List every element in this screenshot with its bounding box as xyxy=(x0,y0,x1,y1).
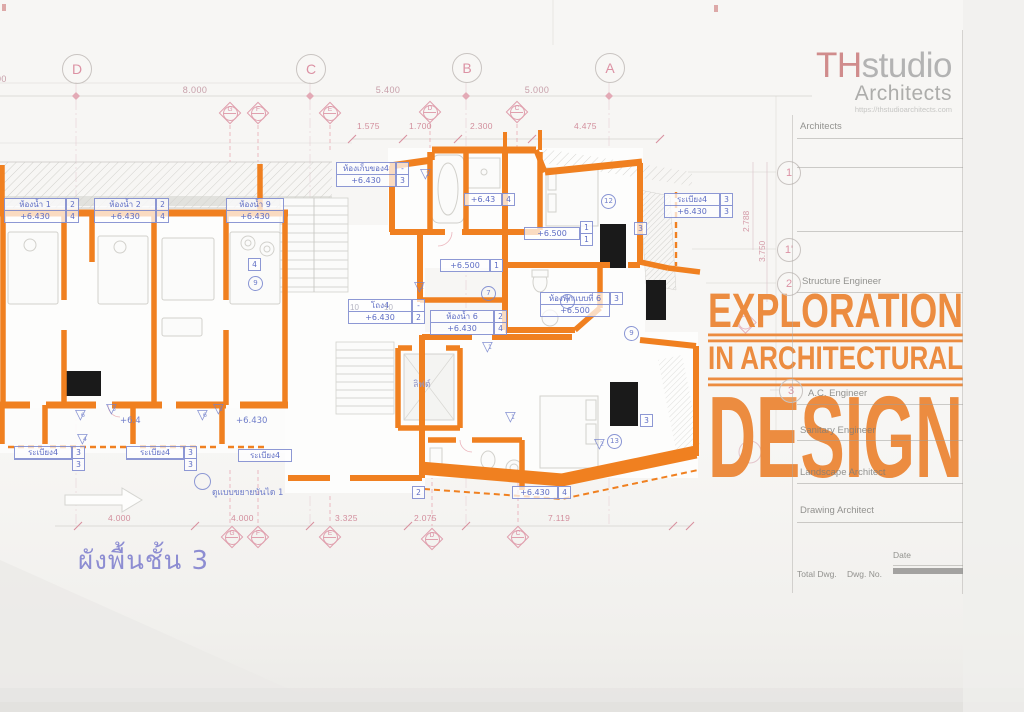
grid-bubble-3: 3 xyxy=(779,379,803,403)
ref-tag-circle: 7 xyxy=(481,286,496,301)
dim-top-partial: 00 xyxy=(0,74,7,84)
tag-box: 2 xyxy=(412,486,425,499)
grid-bubble-b-label: B xyxy=(462,60,471,76)
window-tag-triangle: ▽3 xyxy=(213,404,229,418)
lift-label: ลิฟต์ xyxy=(413,377,431,391)
tag-box: 3 xyxy=(634,222,647,235)
tag-box: 3 xyxy=(396,174,409,187)
ref-tag-circle: 12 xyxy=(601,194,616,209)
window-tag-triangle: ▽6 xyxy=(197,410,213,424)
titleblock-rule xyxy=(797,138,963,139)
tag-box: 1 xyxy=(490,259,503,272)
door-tag-g-bottom: G xyxy=(220,525,244,549)
titleblock-total-dwg: Total Dwg. xyxy=(797,569,837,579)
window-tag-triangle: ▽2 xyxy=(420,169,436,183)
titleblock-landscape-architect: Landscape Architect xyxy=(800,467,886,478)
titleblock-border xyxy=(962,30,963,594)
tag-box: 3 xyxy=(72,458,85,471)
grid-bubble-c: C xyxy=(296,54,326,84)
elev-label-6500b: +6.500 xyxy=(440,259,490,272)
room-label-balcony-3: ระเบียง4 xyxy=(238,449,292,462)
window-tag-triangle: ▽1 xyxy=(505,412,521,426)
door-tag-c-bottom: C xyxy=(506,525,530,549)
dim-top-3: 5.000 xyxy=(515,85,559,95)
titleblock-rule xyxy=(797,483,963,484)
gray-number: 10 xyxy=(384,303,393,312)
titleblock-rule xyxy=(797,522,963,523)
tag-box: 3 xyxy=(184,458,197,471)
window-tag-triangle: ▽4 xyxy=(77,434,93,448)
tag-box: 4 xyxy=(248,258,261,271)
titleblock-rule xyxy=(797,404,963,405)
window-tag-triangle: ▽6 xyxy=(75,410,91,424)
titleblock-border xyxy=(792,115,793,593)
door-tag-g-top: G xyxy=(218,101,242,125)
room-label-unit6: ห้องพักแบบที่ 6+6.500 xyxy=(540,292,610,317)
logo-url: https://thstudioarchitects.com xyxy=(816,104,952,115)
logo: THstudio Architects https://thstudioarch… xyxy=(816,48,952,115)
ref-tag-circle: 9 xyxy=(624,326,639,341)
plan-title: ผังพื้นชั้น 3 xyxy=(78,540,209,581)
ref-tag-circle: 7 xyxy=(560,294,575,309)
dim-bot-1: 4.000 xyxy=(108,513,131,523)
grid-bubble-1: 1 xyxy=(777,161,801,185)
grid-bubble-a: A xyxy=(595,53,625,83)
titleblock-rule xyxy=(893,565,963,566)
titleblock-drawing-architect: Drawing Architect xyxy=(800,505,874,516)
tag-box: 4 xyxy=(156,210,169,223)
door-tag-d-bottom: D xyxy=(420,527,444,551)
titleblock-bar xyxy=(893,568,963,574)
room-label-balcony-right: ระเบียง4+6.430 xyxy=(664,193,720,218)
dim-bot-2: 4.000 xyxy=(231,513,254,523)
titleblock-rule xyxy=(797,440,963,441)
window-tag-triangle: ▽2 xyxy=(414,282,430,296)
tag-box: 1 xyxy=(580,233,593,246)
print-mark xyxy=(2,4,6,11)
door-tag-d-top: D xyxy=(418,100,442,124)
door-tag-e-top: E xyxy=(318,101,342,125)
dim-right-1: 2.788 xyxy=(741,211,751,232)
door-tag-f-bottom: F xyxy=(246,525,270,549)
tag-circle: 9 xyxy=(248,276,263,291)
grid-bubble-a-label: A xyxy=(605,60,614,76)
door-tag-c-top: C xyxy=(505,100,529,124)
logo-architects: Architects xyxy=(816,84,952,104)
room-label-bath1: ห้องน้ำ 1+6.430 xyxy=(4,198,66,223)
door-tag-f-top: F xyxy=(246,101,270,125)
dim-sub-3: 2.300 xyxy=(470,121,493,131)
detail-circle-icon xyxy=(194,473,211,490)
dim-bot-4: 2.075 xyxy=(414,513,437,523)
dim-right-2: 3.750 xyxy=(757,241,767,262)
titleblock-ac-engineer: A.C. Engineer xyxy=(808,388,867,399)
print-mark xyxy=(714,5,718,12)
titleblock-rule xyxy=(797,231,963,232)
dim-top-2: 5.400 xyxy=(366,85,410,95)
logo-th: TH xyxy=(816,46,862,85)
grid-bubble-d-label: D xyxy=(72,61,82,77)
ref-tag-circle: 13 xyxy=(607,434,622,449)
elev-plain: +6.4 xyxy=(120,416,141,426)
grid-bubble-d: D xyxy=(62,54,92,84)
grid-bubble-b: B xyxy=(452,53,482,83)
room-label-bath6: ห้องน้ำ 6+6.430 xyxy=(430,310,494,335)
titleblock-rule xyxy=(797,167,963,168)
tag-box: 4 xyxy=(502,193,515,206)
room-label-balcony-1: ระเบียง4 xyxy=(14,446,72,460)
tag-box: 3 xyxy=(610,292,623,305)
dim-bot-5: 7.119 xyxy=(548,513,570,523)
tag-box: 2 xyxy=(412,311,425,324)
room-label-storage4: ห้องเก็บของ4+6.430 xyxy=(336,162,396,187)
gray-number: 10 xyxy=(350,303,359,312)
grid-bubble-1p: 1' xyxy=(777,238,801,262)
window-tag-triangle: ▽3 xyxy=(106,404,122,418)
room-label-bath9: ห้องน้ำ 9+6.430 xyxy=(226,198,284,223)
titleblock-rule xyxy=(797,292,963,293)
titleblock-sanitary-engineer: Sanitary Engineer xyxy=(800,425,876,436)
tag-box: 4 xyxy=(558,486,571,499)
room-label-bath2: ห้องน้ำ 2+6.430 xyxy=(94,198,156,223)
dim-sub-4: 4.475 xyxy=(574,121,597,131)
door-tag-e-bottom: E xyxy=(318,525,342,549)
room-label-balcony-2: ระเบียง4 xyxy=(126,446,184,460)
grid-bubble-3-label: 3 xyxy=(788,385,794,397)
window-tag-triangle: ▽1 xyxy=(482,342,498,356)
titleblock-structure-engineer: Structure Engineer xyxy=(802,276,881,287)
elev-label-643: +6.43 xyxy=(464,193,502,206)
grid-bubble-c-label: C xyxy=(306,61,316,77)
titleblock-dwg-no: Dwg. No. xyxy=(847,569,882,579)
dim-top-1: 8.000 xyxy=(173,85,217,95)
dim-sub-1: 1.575 xyxy=(357,121,380,131)
dim-bot-3: 3.325 xyxy=(335,513,358,523)
tag-box: 3 xyxy=(720,205,733,218)
elev-label-6430-bottom: +6.430 xyxy=(512,486,558,499)
logo-studio: studio xyxy=(862,46,952,85)
tag-box: 3 xyxy=(640,414,653,427)
poster: EXPLORATION IN ARCHITECTURAL DESIGN D C … xyxy=(0,0,1024,712)
titleblock-architects: Architects xyxy=(800,121,842,132)
tag-box: 4 xyxy=(66,210,79,223)
titleblock-date: Date xyxy=(893,550,911,560)
tag-box: 4 xyxy=(494,322,507,335)
elev-plain: +6.430 xyxy=(236,416,267,426)
elev-label-6500a: +6.500 xyxy=(524,227,580,240)
stair-detail-note: ดูแบบขยายบันได 1 xyxy=(212,485,283,499)
logo-wordmark: THstudio xyxy=(816,48,952,84)
